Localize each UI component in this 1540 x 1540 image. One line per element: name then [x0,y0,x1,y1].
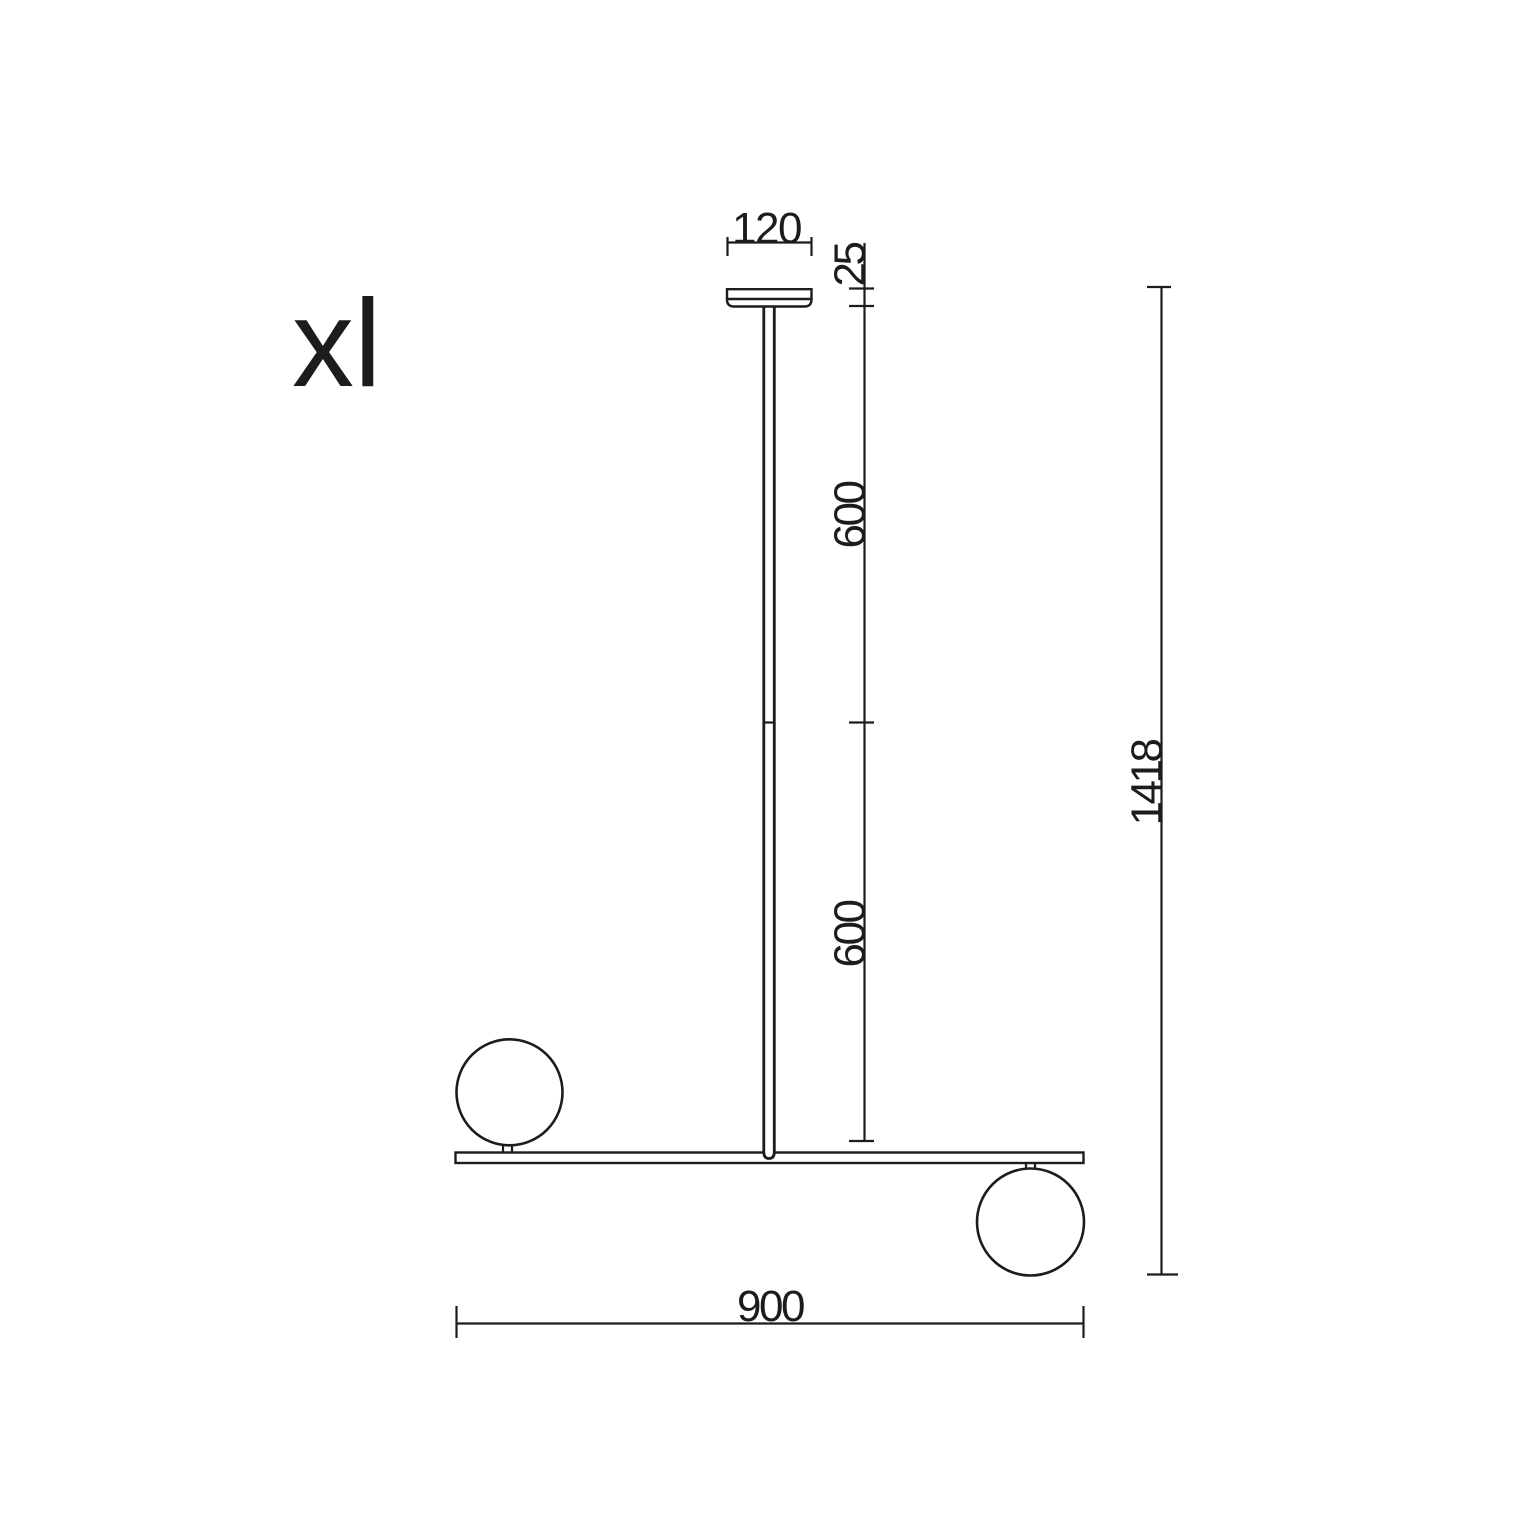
svg-text:120: 120 [732,204,801,253]
svg-text:600: 600 [826,901,875,968]
svg-text:600: 600 [826,482,875,549]
svg-text:900: 900 [737,1282,804,1331]
svg-text:1418: 1418 [1123,740,1172,826]
svg-text:xl: xl [292,275,382,413]
svg-text:25: 25 [826,243,875,287]
